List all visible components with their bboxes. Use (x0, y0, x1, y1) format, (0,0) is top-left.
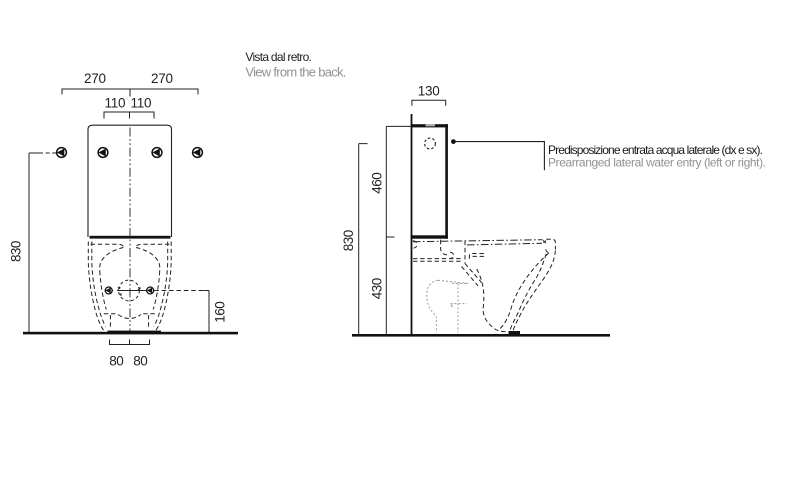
svg-text:830: 830 (341, 230, 356, 252)
svg-text:110: 110 (105, 96, 126, 111)
svg-text:Prearranged lateral water entr: Prearranged lateral water entry (left or… (548, 156, 766, 170)
svg-text:130: 130 (418, 84, 440, 99)
svg-text:160: 160 (213, 301, 228, 323)
svg-text:830: 830 (9, 241, 24, 262)
svg-text:270: 270 (151, 71, 173, 86)
svg-text:460: 460 (370, 172, 385, 194)
svg-text:80: 80 (133, 354, 148, 369)
svg-text:430: 430 (370, 278, 385, 300)
svg-text:270: 270 (84, 71, 106, 86)
svg-text:Vista dal retro.: Vista dal retro. (245, 50, 312, 64)
svg-text:View from the back.: View from the back. (245, 65, 346, 80)
svg-text:80: 80 (109, 354, 124, 369)
svg-text:110: 110 (131, 96, 152, 111)
